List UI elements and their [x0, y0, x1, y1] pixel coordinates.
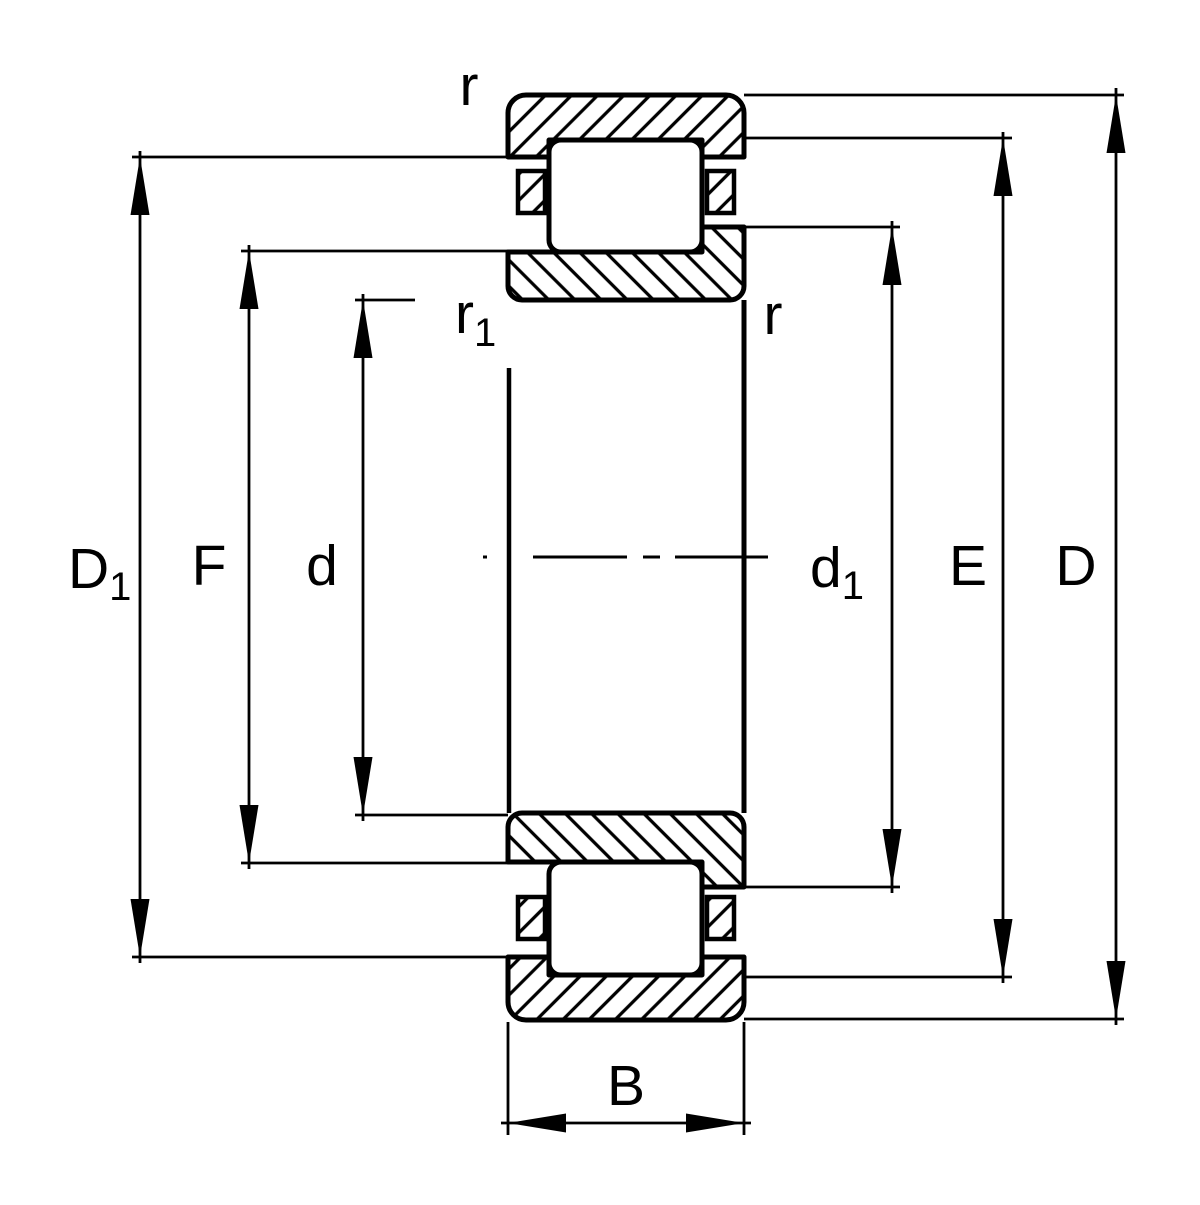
label-D: D — [1055, 534, 1096, 598]
label-F: F — [192, 534, 227, 598]
cage-bar-bottom-right — [707, 897, 734, 939]
cage-bar-top-right — [707, 171, 734, 213]
label-d1-sub: 1 — [842, 564, 864, 608]
label-r-right: r — [764, 283, 783, 347]
label-D1-sub: 1 — [109, 565, 131, 609]
bearing-dimension-drawing: D1 F d r r1 r d1 E D B — [0, 0, 1200, 1200]
label-E: E — [949, 534, 987, 598]
cage-bar-top-left — [518, 171, 545, 213]
roller-top — [549, 140, 702, 252]
label-B: B — [607, 1054, 645, 1118]
bearing-section-top — [508, 95, 744, 300]
cage-bar-bottom-left — [518, 897, 545, 939]
label-r-top: r — [460, 54, 479, 118]
label-r1-sub: 1 — [474, 311, 496, 355]
bearing-section-bottom — [508, 813, 744, 1020]
roller-bottom — [549, 862, 702, 975]
label-D1-base: D — [68, 537, 109, 601]
label-d1-base: d — [810, 536, 842, 600]
label-d: d — [306, 534, 338, 598]
label-r1-base: r — [455, 282, 474, 346]
drawing-canvas: D1 F d r r1 r d1 E D B — [0, 0, 1200, 1200]
